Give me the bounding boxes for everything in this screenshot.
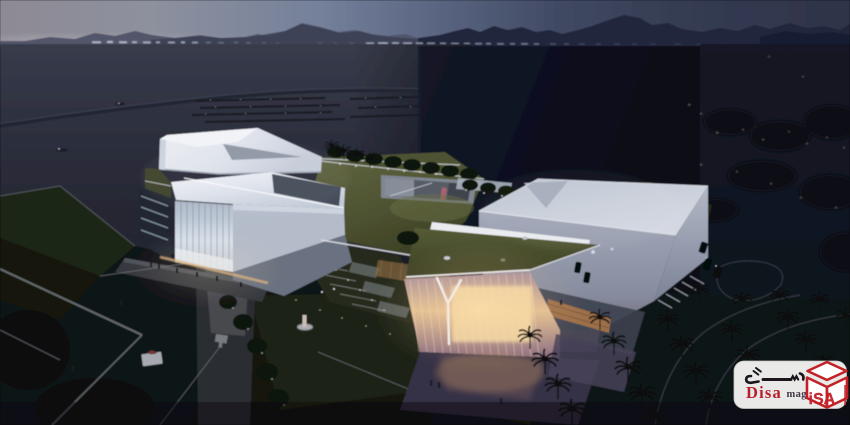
svg-text:mag: mag [787,389,808,400]
svg-text:iSA: iSA [809,391,836,408]
svg-text:Disa: Disa [746,383,782,402]
